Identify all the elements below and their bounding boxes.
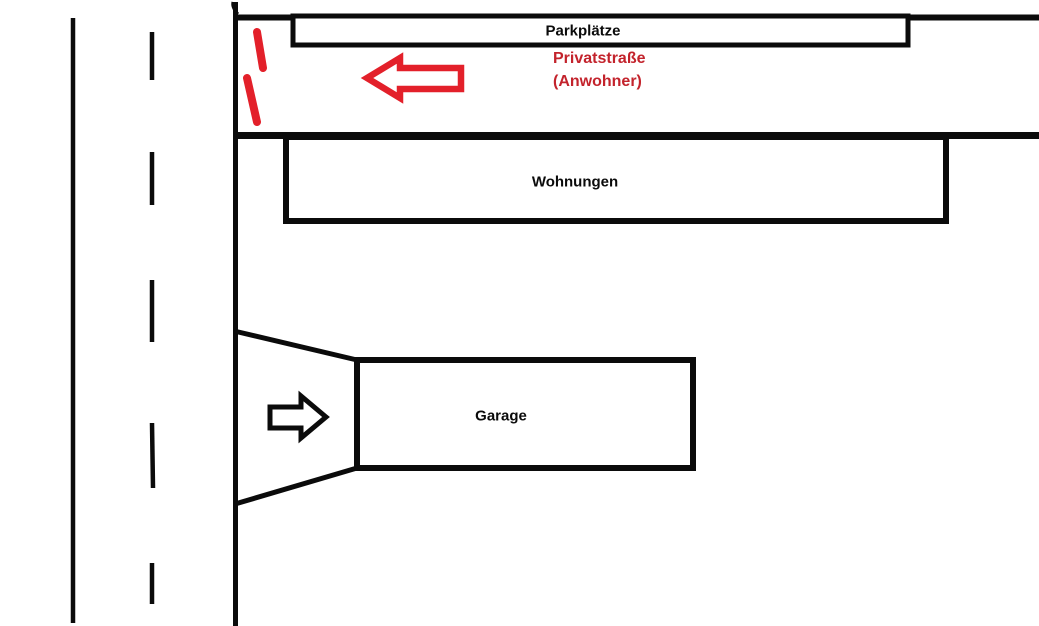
paint-canvas: Parkplätze Privatstraße (Anwohner) Wohnu… xyxy=(0,0,1039,626)
parking-label: Parkplätze xyxy=(545,24,620,39)
right-arrow-icon xyxy=(270,396,326,438)
private-street-label-line2: (Anwohner) xyxy=(553,70,646,93)
private-street-label: Privatstraße (Anwohner) xyxy=(553,47,646,93)
no-entry-barrier-marks-icon xyxy=(247,32,263,122)
barrier-dash xyxy=(257,32,263,68)
left-arrow-icon xyxy=(367,58,461,98)
sketch-drawing xyxy=(0,0,1039,626)
barrier-dash xyxy=(247,78,257,122)
garage-label: Garage xyxy=(475,409,527,424)
private-street-label-line1: Privatstraße xyxy=(553,47,646,70)
apartments-label: Wohnungen xyxy=(532,175,618,190)
driveway-top-line xyxy=(234,331,357,360)
road-center-dashed-line xyxy=(152,32,153,604)
driveway-bottom-line xyxy=(235,468,357,504)
lane-dash xyxy=(152,423,153,488)
main-road xyxy=(73,2,238,626)
